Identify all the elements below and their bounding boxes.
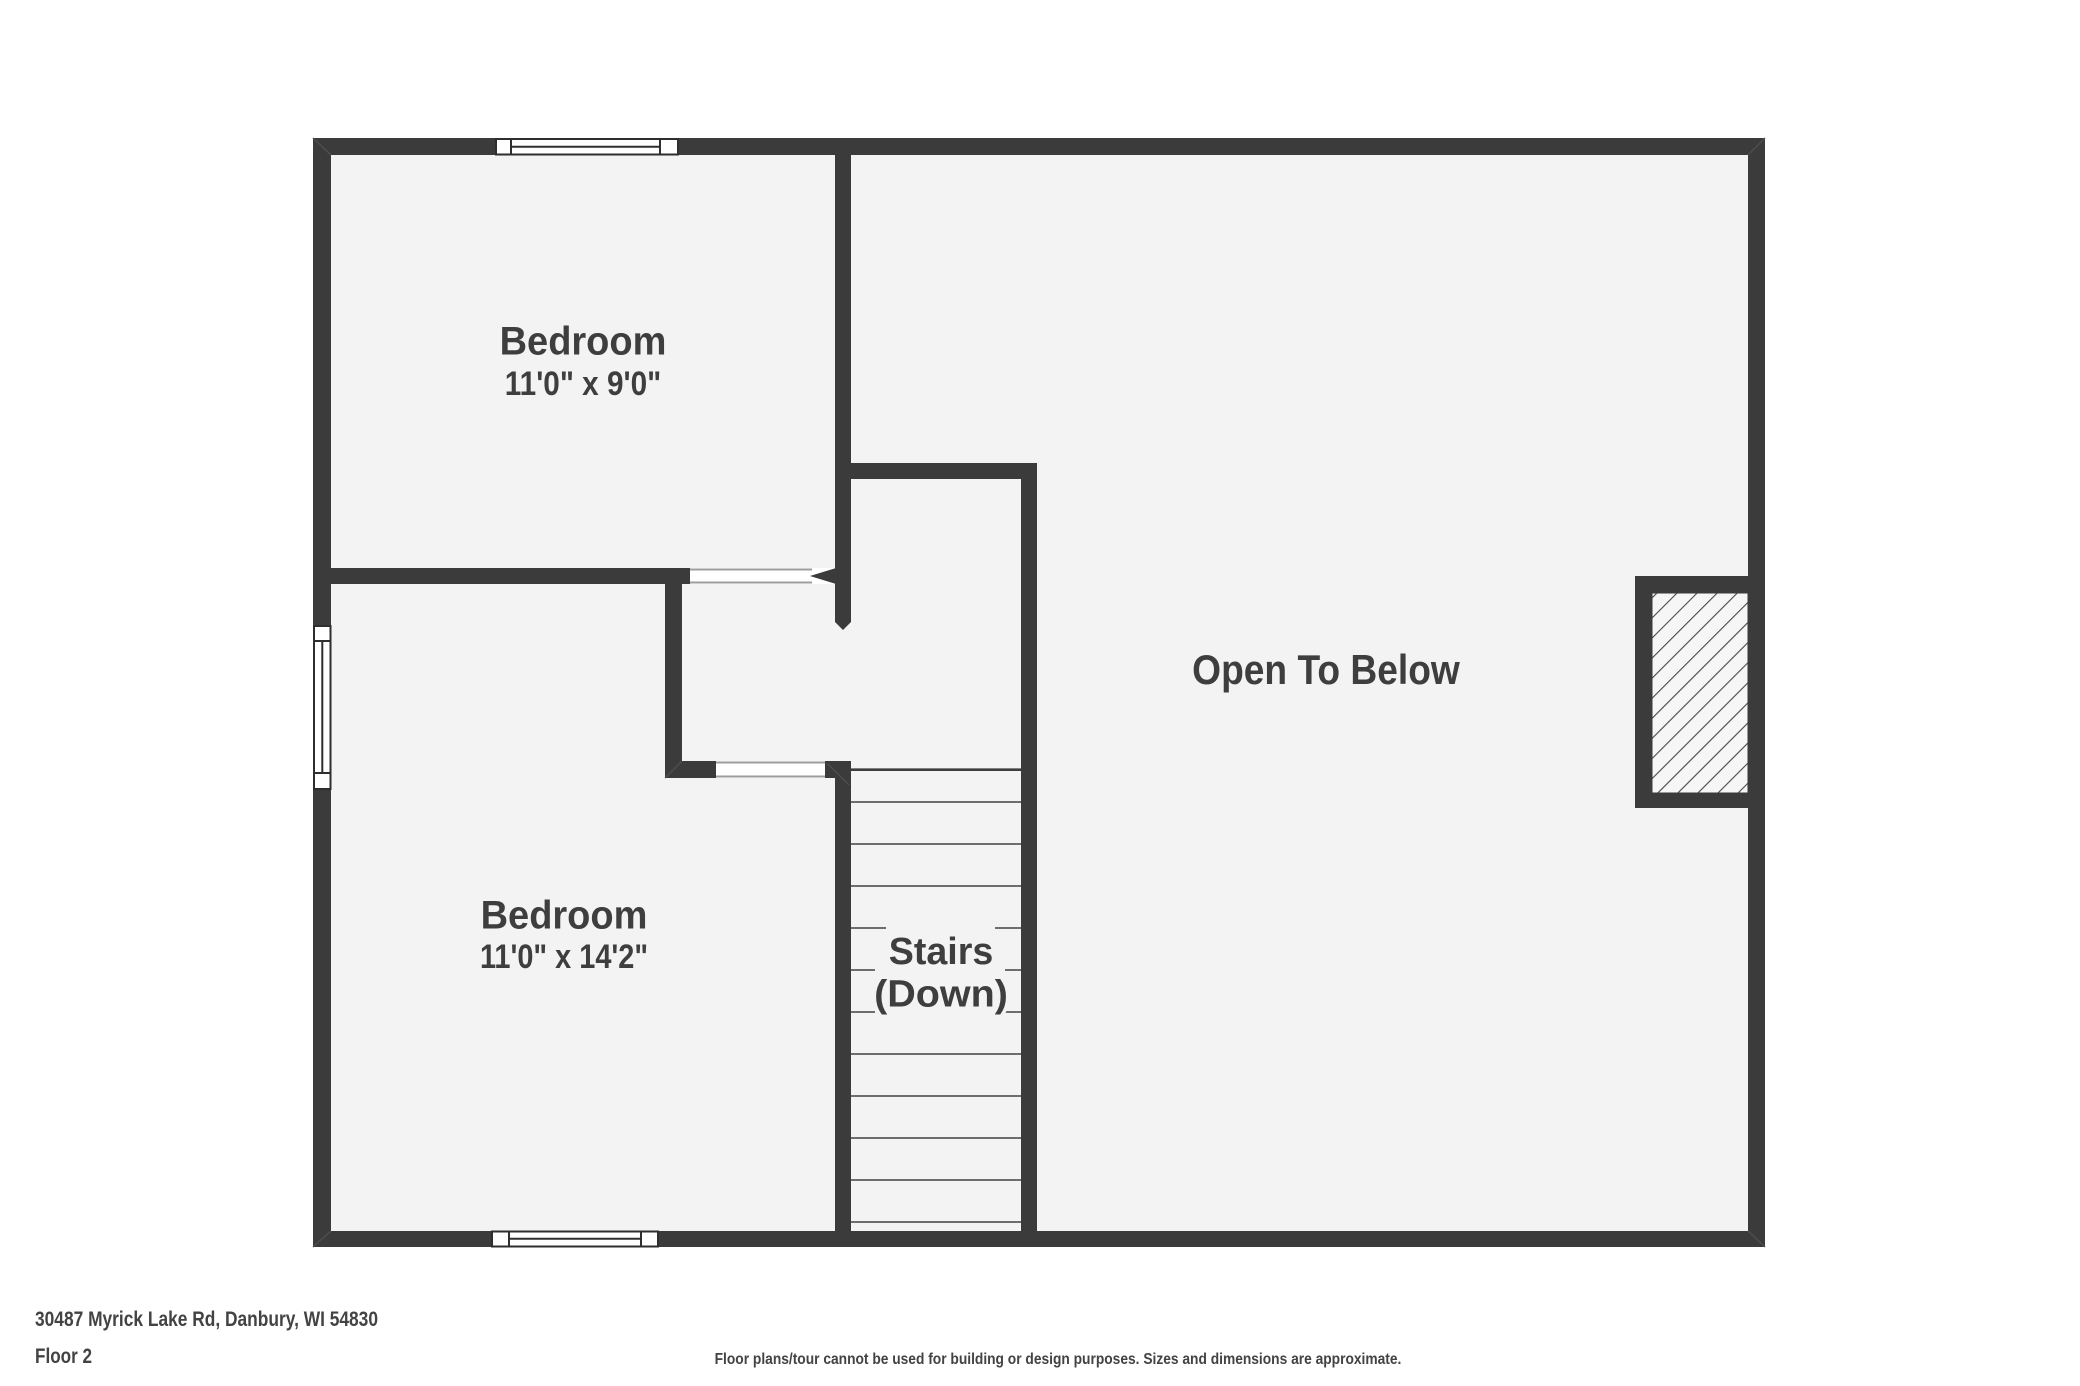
svg-text:Bedroom: Bedroom [481, 893, 648, 937]
svg-text:30487 Myrick Lake Rd, Danbury,: 30487 Myrick Lake Rd, Danbury, WI 54830 [35, 1309, 378, 1332]
svg-text:Bedroom: Bedroom [500, 319, 667, 363]
svg-text:Open To Below: Open To Below [1192, 647, 1460, 694]
svg-text:11'0" x 9'0": 11'0" x 9'0" [505, 364, 661, 402]
svg-text:Floor 2: Floor 2 [35, 1345, 92, 1368]
svg-text:Floor plans/tour cannot be use: Floor plans/tour cannot be used for buil… [715, 1350, 1402, 1368]
svg-text:Stairs: Stairs [889, 931, 994, 973]
svg-text:11'0" x 14'2": 11'0" x 14'2" [480, 937, 648, 976]
svg-text:(Down): (Down) [874, 973, 1008, 1015]
